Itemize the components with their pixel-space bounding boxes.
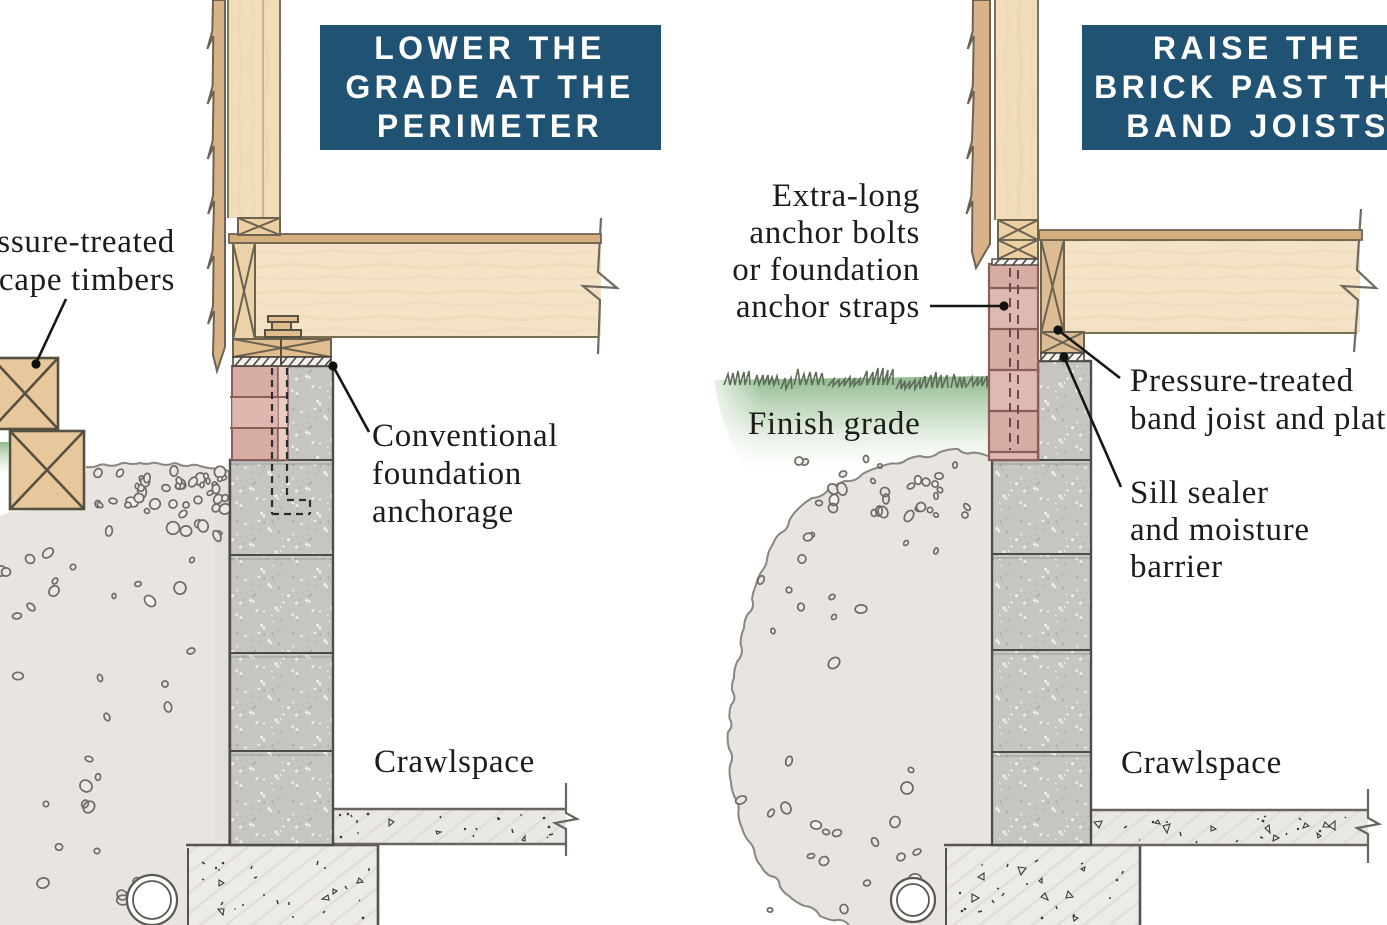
svg-text:BAND JOISTS: BAND JOISTS [1126, 108, 1387, 144]
svg-text:Extra-long: Extra-long [772, 178, 920, 214]
svg-text:PERIMETER: PERIMETER [377, 108, 603, 144]
svg-text:anchor bolts: anchor bolts [749, 215, 920, 251]
svg-text:foundation: foundation [372, 456, 522, 492]
svg-text:Finish grade: Finish grade [748, 406, 920, 442]
svg-text:RAISE THE: RAISE THE [1153, 30, 1363, 66]
svg-text:GRADE AT THE: GRADE AT THE [345, 69, 634, 105]
svg-text:Pressure-treated: Pressure-treated [1130, 363, 1354, 399]
svg-text:Sill sealer: Sill sealer [1130, 475, 1269, 511]
svg-text:Pressure-treated: Pressure-treated [0, 224, 175, 260]
svg-text:Crawlspace: Crawlspace [374, 744, 535, 780]
svg-text:Conventional: Conventional [372, 418, 558, 454]
svg-text:BRICK PAST THE: BRICK PAST THE [1094, 69, 1387, 105]
svg-text:or foundation: or foundation [732, 252, 920, 288]
svg-text:anchorage: anchorage [372, 494, 514, 530]
svg-text:LOWER THE: LOWER THE [374, 30, 606, 66]
svg-text:and moisture: and moisture [1130, 512, 1310, 548]
svg-text:barrier: barrier [1130, 549, 1223, 585]
svg-text:anchor straps: anchor straps [736, 289, 920, 325]
svg-text:Crawlspace: Crawlspace [1121, 745, 1282, 781]
svg-text:landscape timbers: landscape timbers [0, 262, 175, 298]
svg-text:band joist and plate: band joist and plate [1130, 401, 1387, 437]
